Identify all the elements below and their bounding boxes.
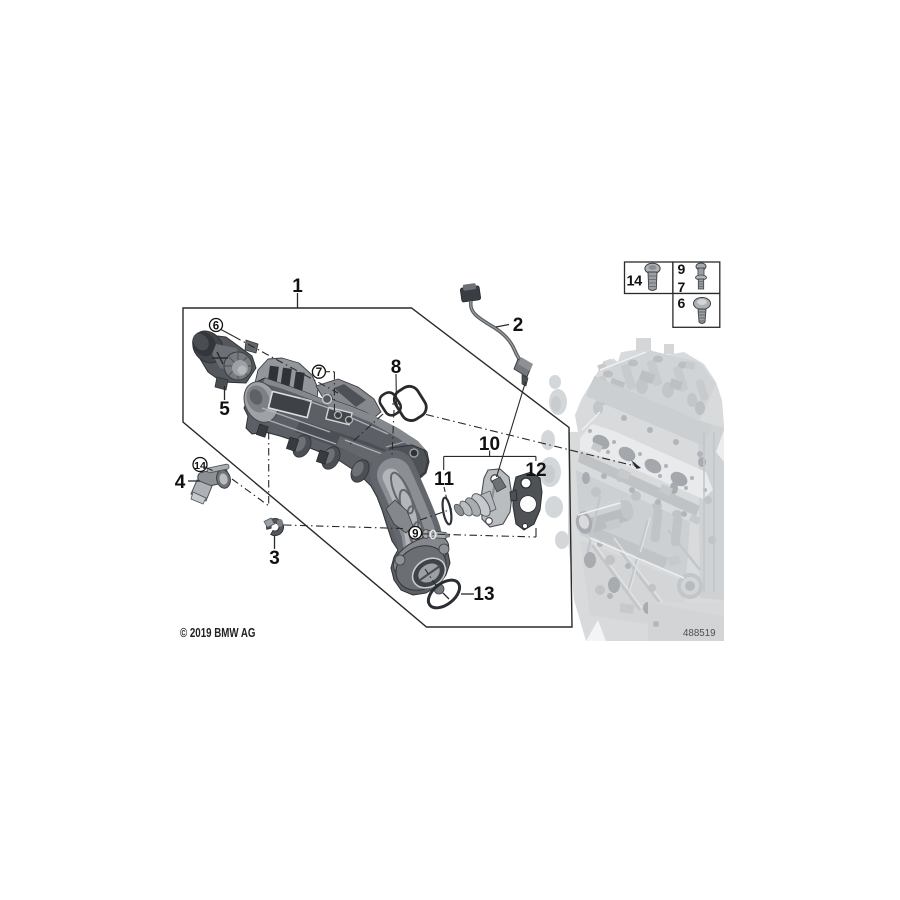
svg-text:5: 5 — [219, 399, 230, 420]
svg-text:7: 7 — [316, 367, 322, 379]
svg-text:14: 14 — [627, 274, 643, 290]
svg-text:4: 4 — [175, 472, 186, 493]
svg-text:9: 9 — [678, 261, 686, 277]
svg-text:11: 11 — [434, 469, 455, 490]
svg-text:6: 6 — [678, 295, 686, 311]
svg-text:3: 3 — [269, 548, 280, 569]
svg-text:1: 1 — [292, 276, 303, 297]
svg-text:14: 14 — [194, 460, 206, 472]
svg-text:10: 10 — [479, 434, 500, 455]
svg-text:13: 13 — [473, 584, 494, 605]
svg-text:6: 6 — [213, 321, 219, 333]
svg-text:9: 9 — [412, 528, 418, 540]
svg-text:© 2019 BMW AG: © 2019 BMW AG — [180, 627, 256, 640]
svg-text:2: 2 — [513, 315, 524, 336]
svg-text:8: 8 — [391, 357, 402, 378]
svg-text:7: 7 — [678, 279, 686, 295]
svg-text:488519: 488519 — [683, 628, 716, 639]
svg-text:12: 12 — [525, 460, 546, 481]
